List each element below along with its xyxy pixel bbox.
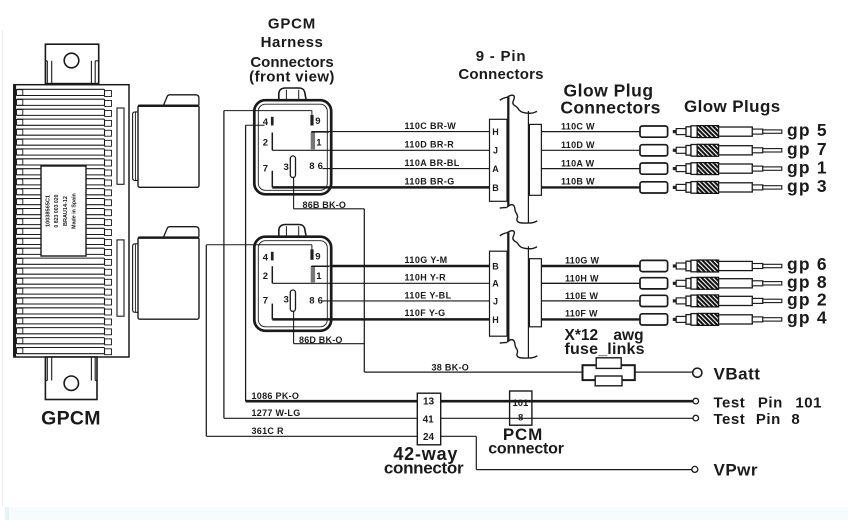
svg-text:A: A bbox=[492, 164, 499, 174]
svg-text:Test Pin 101: Test Pin 101 bbox=[714, 394, 822, 411]
svg-text:1086 PK-O: 1086 PK-O bbox=[252, 391, 300, 401]
svg-text:110E W: 110E W bbox=[565, 291, 599, 301]
svg-text:110A BR-BL: 110A BR-BL bbox=[405, 158, 460, 168]
svg-text:Connectors: Connectors bbox=[458, 66, 543, 83]
svg-text:H: H bbox=[492, 315, 499, 325]
svg-text:110C BR-W: 110C BR-W bbox=[405, 121, 457, 131]
svg-text:1277 W-LG: 1277 W-LG bbox=[252, 408, 301, 418]
svg-text:9: 9 bbox=[315, 116, 320, 127]
svg-text:110C W: 110C W bbox=[561, 122, 595, 132]
svg-text:38 BK-O: 38 BK-O bbox=[432, 362, 470, 372]
svg-text:110B BR-G: 110B BR-G bbox=[405, 177, 455, 187]
svg-text:110G W: 110G W bbox=[565, 256, 600, 266]
svg-text:2: 2 bbox=[263, 271, 268, 282]
svg-text:361C R: 361C R bbox=[252, 426, 285, 436]
svg-text:gp 1: gp 1 bbox=[787, 157, 828, 177]
svg-text:B: B bbox=[492, 183, 499, 193]
svg-text:Harness: Harness bbox=[261, 34, 324, 51]
svg-text:connector: connector bbox=[488, 441, 564, 458]
svg-text:connector: connector bbox=[384, 459, 464, 478]
svg-text:110F W: 110F W bbox=[565, 309, 598, 319]
svg-text:9 - Pin: 9 - Pin bbox=[476, 48, 527, 65]
svg-text:110G Y-M: 110G Y-M bbox=[405, 255, 448, 265]
svg-text:J: J bbox=[493, 296, 498, 306]
svg-text:gp 5: gp 5 bbox=[787, 120, 828, 140]
svg-text:110F Y-G: 110F Y-G bbox=[405, 308, 446, 318]
svg-text:110D W: 110D W bbox=[561, 140, 595, 150]
svg-text:110B W: 110B W bbox=[561, 177, 595, 187]
svg-text:41: 41 bbox=[423, 414, 435, 425]
svg-text:H: H bbox=[492, 127, 499, 137]
svg-text:Made in Spain: Made in Spain bbox=[72, 193, 78, 229]
svg-text:86D BK-O: 86D BK-O bbox=[299, 335, 343, 345]
svg-text:110E Y-BL: 110E Y-BL bbox=[405, 290, 452, 300]
svg-text:1: 1 bbox=[316, 137, 322, 148]
svg-text:3: 3 bbox=[284, 162, 289, 173]
svg-text:9: 9 bbox=[315, 251, 320, 262]
svg-text:24: 24 bbox=[423, 432, 435, 443]
svg-text:gp 7: gp 7 bbox=[787, 139, 828, 159]
svg-text:4: 4 bbox=[263, 117, 269, 128]
svg-text:7: 7 bbox=[263, 295, 268, 306]
svg-text:VPwr: VPwr bbox=[714, 460, 759, 479]
svg-text:2: 2 bbox=[263, 137, 268, 148]
svg-text:Glow Plugs: Glow Plugs bbox=[684, 97, 781, 116]
svg-text:A: A bbox=[492, 279, 499, 289]
svg-text:gp 3: gp 3 bbox=[787, 176, 828, 196]
svg-text:110H Y-R: 110H Y-R bbox=[405, 273, 447, 283]
svg-text:13: 13 bbox=[423, 396, 435, 407]
svg-text:Test Pin 8: Test Pin 8 bbox=[714, 411, 801, 428]
svg-text:10038565C1: 10038565C1 bbox=[46, 195, 52, 227]
svg-text:8 6: 8 6 bbox=[309, 295, 323, 306]
svg-text:VBatt: VBatt bbox=[714, 364, 761, 383]
svg-text:110H W: 110H W bbox=[565, 273, 599, 283]
svg-text:8 6: 8 6 bbox=[309, 161, 323, 172]
svg-text:gp 2: gp 2 bbox=[787, 290, 828, 310]
svg-text:1: 1 bbox=[316, 271, 322, 282]
svg-text:3: 3 bbox=[284, 294, 289, 305]
svg-text:gp 4: gp 4 bbox=[787, 308, 828, 328]
svg-text:110A W: 110A W bbox=[561, 158, 595, 168]
svg-text:fuse_links: fuse_links bbox=[565, 341, 645, 358]
svg-text:Connectors: Connectors bbox=[560, 97, 660, 117]
svg-text:BRAU14-12: BRAU14-12 bbox=[63, 196, 69, 226]
svg-text:8: 8 bbox=[518, 412, 523, 423]
svg-text:(front view): (front view) bbox=[249, 69, 335, 86]
svg-text:GPCM: GPCM bbox=[41, 408, 101, 430]
svg-text:B: B bbox=[492, 261, 499, 271]
svg-text:0 823 003 020: 0 823 003 020 bbox=[54, 194, 60, 227]
svg-text:4: 4 bbox=[263, 252, 269, 263]
svg-text:J: J bbox=[493, 146, 498, 156]
svg-text:101: 101 bbox=[512, 398, 529, 409]
svg-text:86B BK-O: 86B BK-O bbox=[303, 200, 347, 210]
svg-text:7: 7 bbox=[263, 164, 268, 175]
svg-text:GPCM: GPCM bbox=[268, 16, 316, 33]
svg-text:110D BR-R: 110D BR-R bbox=[405, 140, 455, 150]
